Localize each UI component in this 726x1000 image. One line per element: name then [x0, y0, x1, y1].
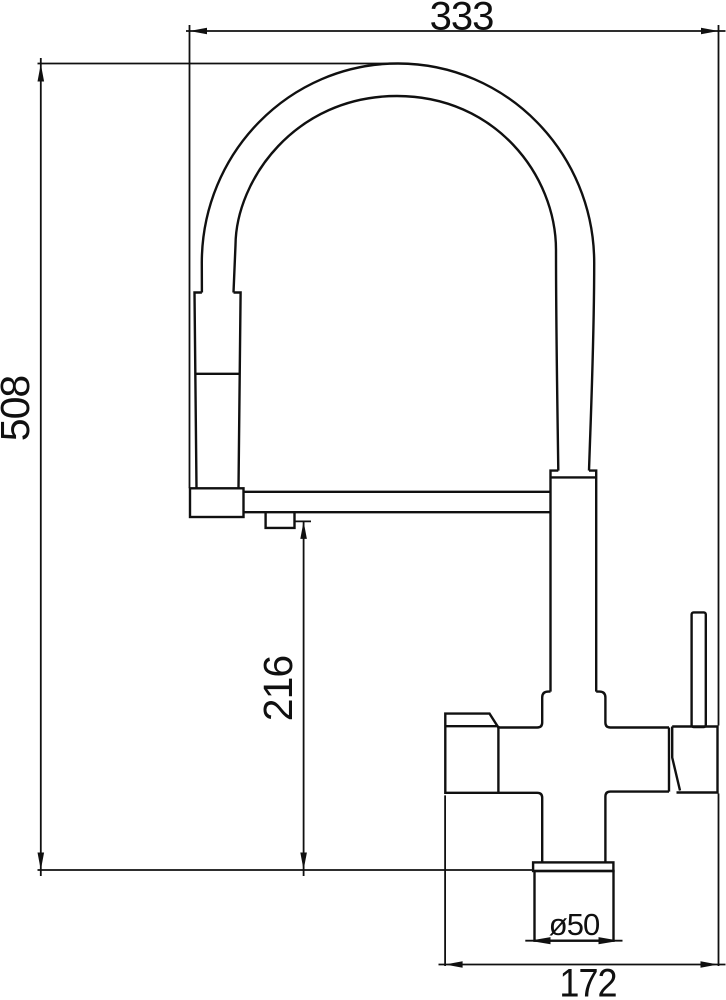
svg-text:508: 508 [0, 376, 38, 442]
svg-text:216: 216 [255, 656, 301, 721]
svg-text:333: 333 [430, 0, 494, 39]
svg-text:172: 172 [559, 962, 616, 1000]
svg-text:ø50: ø50 [549, 907, 600, 942]
